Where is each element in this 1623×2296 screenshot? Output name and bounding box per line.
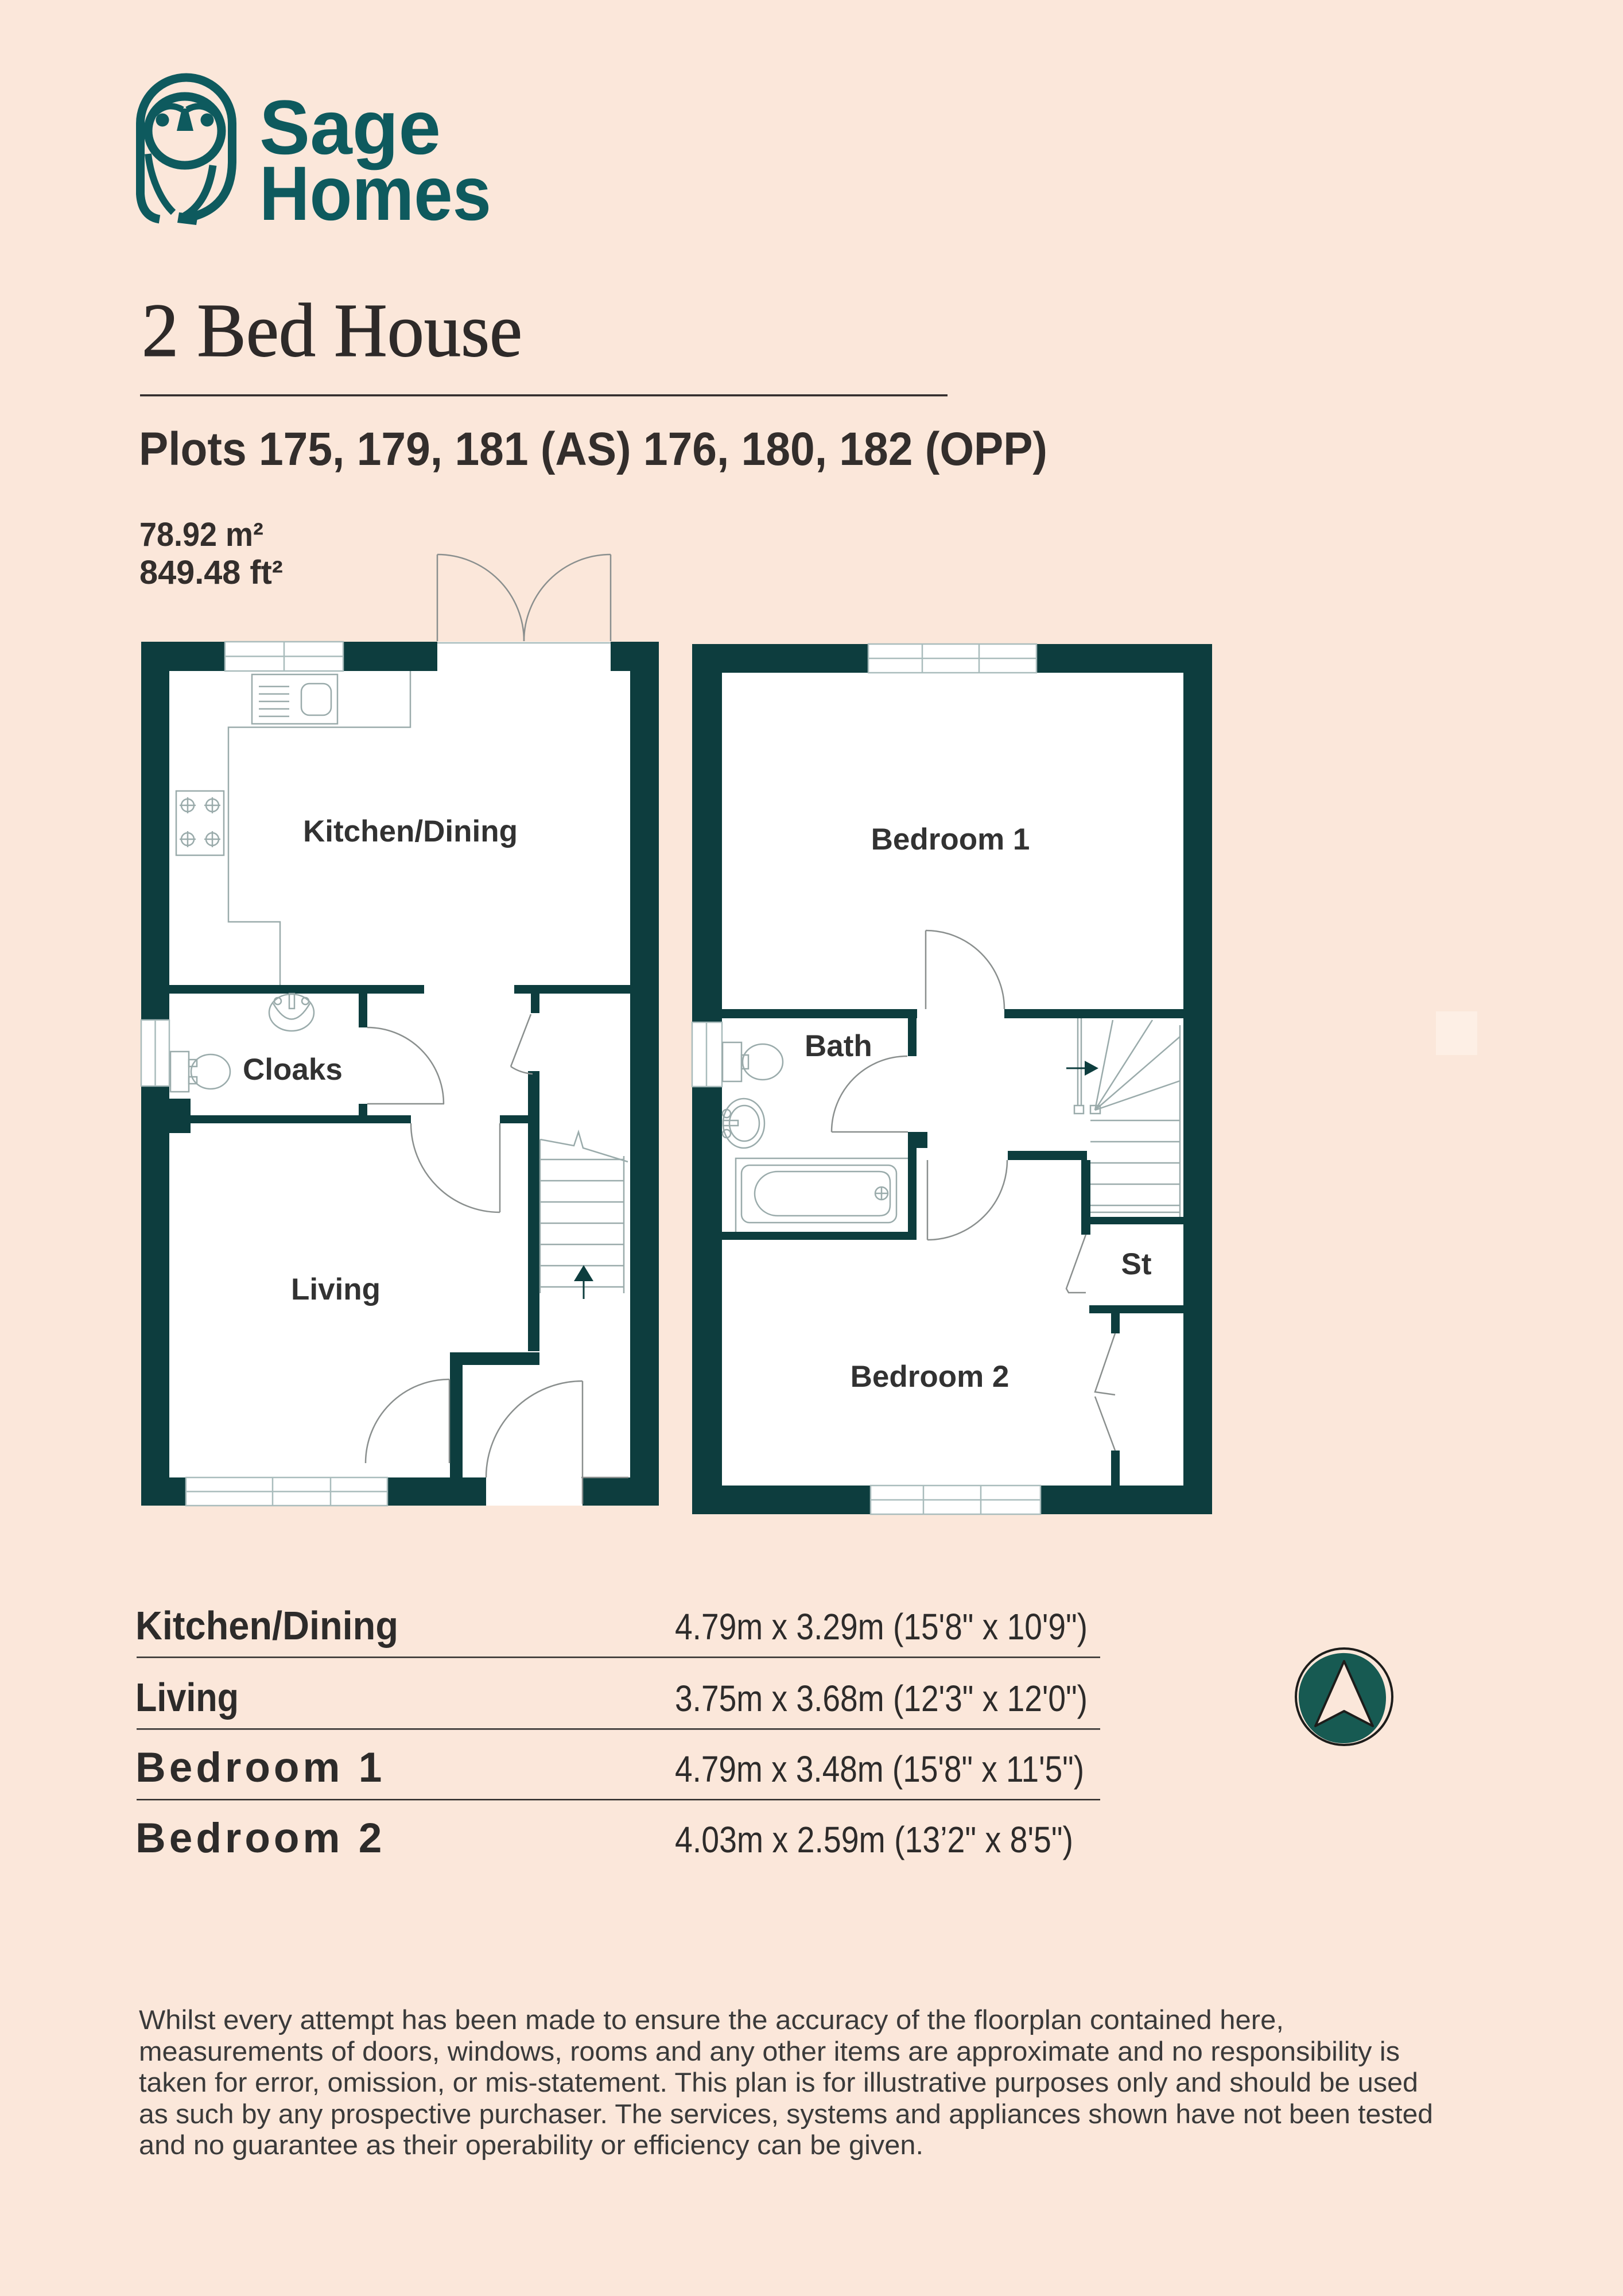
svg-text:Kitchen/Dining: Kitchen/Dining xyxy=(303,815,518,848)
svg-text:3.75m x 3.68m (12'3" x 12'0"): 3.75m x 3.68m (12'3" x 12'0") xyxy=(675,1678,1088,1719)
svg-text:4.79m x 3.48m (15'8" x 11'5"): 4.79m x 3.48m (15'8" x 11'5") xyxy=(675,1748,1084,1790)
svg-text:Bedroom 2: Bedroom 2 xyxy=(135,1815,385,1861)
svg-text:Bedroom 1: Bedroom 1 xyxy=(871,823,1030,856)
svg-text:Plots 175, 179, 181 (AS) 176,: Plots 175, 179, 181 (AS) 176, 180, 182 (… xyxy=(139,423,1047,475)
svg-text:Living: Living xyxy=(291,1273,380,1306)
svg-text:Bath: Bath xyxy=(805,1029,872,1063)
svg-text:4.79m x 3.29m (15'8" x 10'9"): 4.79m x 3.29m (15'8" x 10'9") xyxy=(675,1606,1088,1647)
svg-text:as such by any prospective pur: as such by any prospective purchaser. Th… xyxy=(139,2099,1433,2129)
svg-text:4.03m x 2.59m (13’2" x 8'5"): 4.03m x 2.59m (13’2" x 8'5") xyxy=(675,1819,1073,1860)
svg-text:Bedroom 2: Bedroom 2 xyxy=(851,1360,1009,1394)
svg-text:measurements of doors, windows: measurements of doors, windows, rooms an… xyxy=(139,2036,1400,2066)
svg-text:78.92 m²: 78.92 m² xyxy=(139,516,263,553)
svg-text:2 Bed House: 2 Bed House xyxy=(142,288,522,373)
svg-text:849.48 ft²: 849.48 ft² xyxy=(139,554,283,591)
svg-text:Kitchen/Dining: Kitchen/Dining xyxy=(135,1603,398,1648)
svg-text:Living: Living xyxy=(135,1675,239,1720)
svg-text:and no guarantee as their oper: and no guarantee as their operability or… xyxy=(139,2130,923,2160)
svg-text:Bedroom 1: Bedroom 1 xyxy=(135,1744,385,1791)
svg-text:Whilst every attempt has been: Whilst every attempt has been made to en… xyxy=(139,2004,1284,2035)
svg-text:Cloaks: Cloaks xyxy=(243,1053,343,1087)
svg-text:Homes: Homes xyxy=(259,151,491,236)
svg-text:St: St xyxy=(1121,1247,1152,1281)
svg-text:taken for error, omission, or: taken for error, omission, or mis-statem… xyxy=(139,2067,1418,2097)
